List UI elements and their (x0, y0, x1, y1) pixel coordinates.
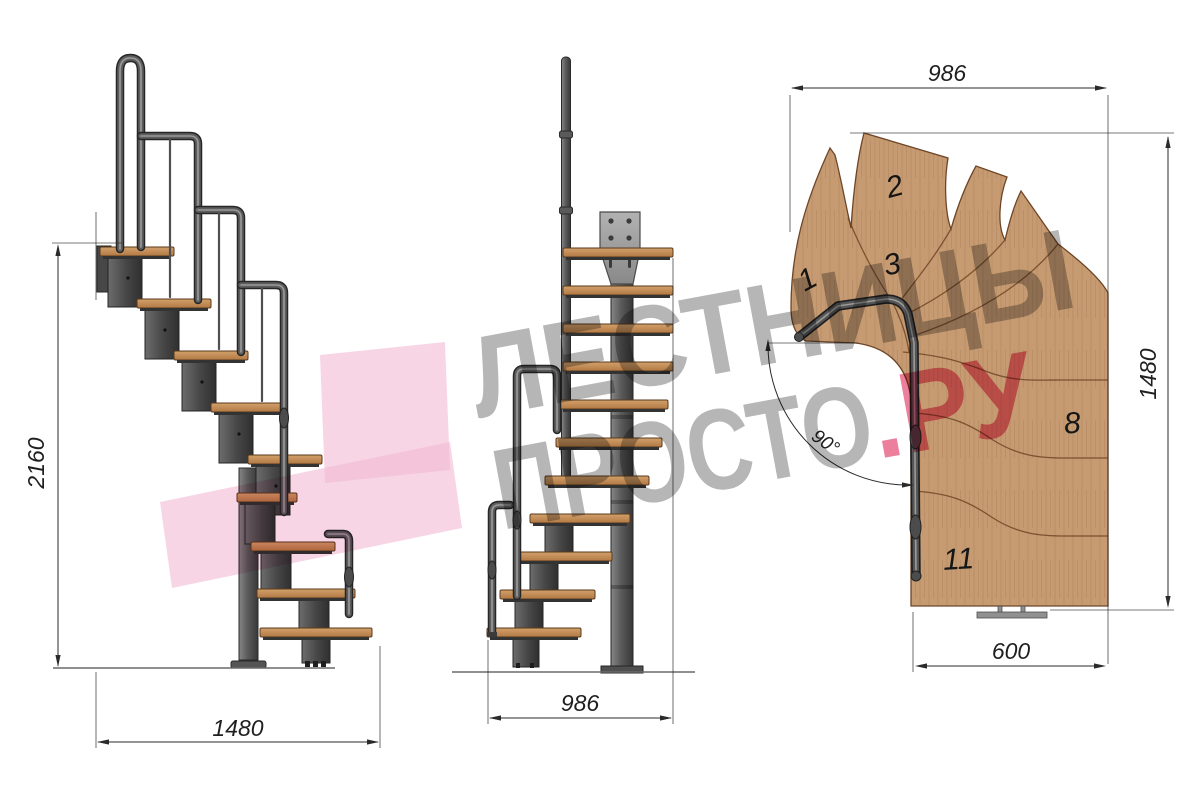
front-width-label: 986 (561, 690, 600, 716)
step-label-8: 8 (1062, 406, 1082, 440)
side-height-label: 2160 (23, 437, 49, 489)
plan-depth-label: 600 (992, 638, 1031, 664)
plan-height-label: 1480 (1135, 348, 1161, 399)
floor-base-plate (977, 606, 1047, 618)
drawing-canvas: 2160 1480 986 986 1480 600 90° 1 2 3 8 1… (0, 0, 1200, 790)
step-label-11: 11 (942, 542, 975, 577)
side-width-label: 1480 (212, 715, 263, 741)
plan-width-label: 986 (928, 60, 967, 86)
staircase-blueprint: 2160 1480 986 986 1480 600 90° 1 2 3 8 1… (0, 0, 1200, 790)
